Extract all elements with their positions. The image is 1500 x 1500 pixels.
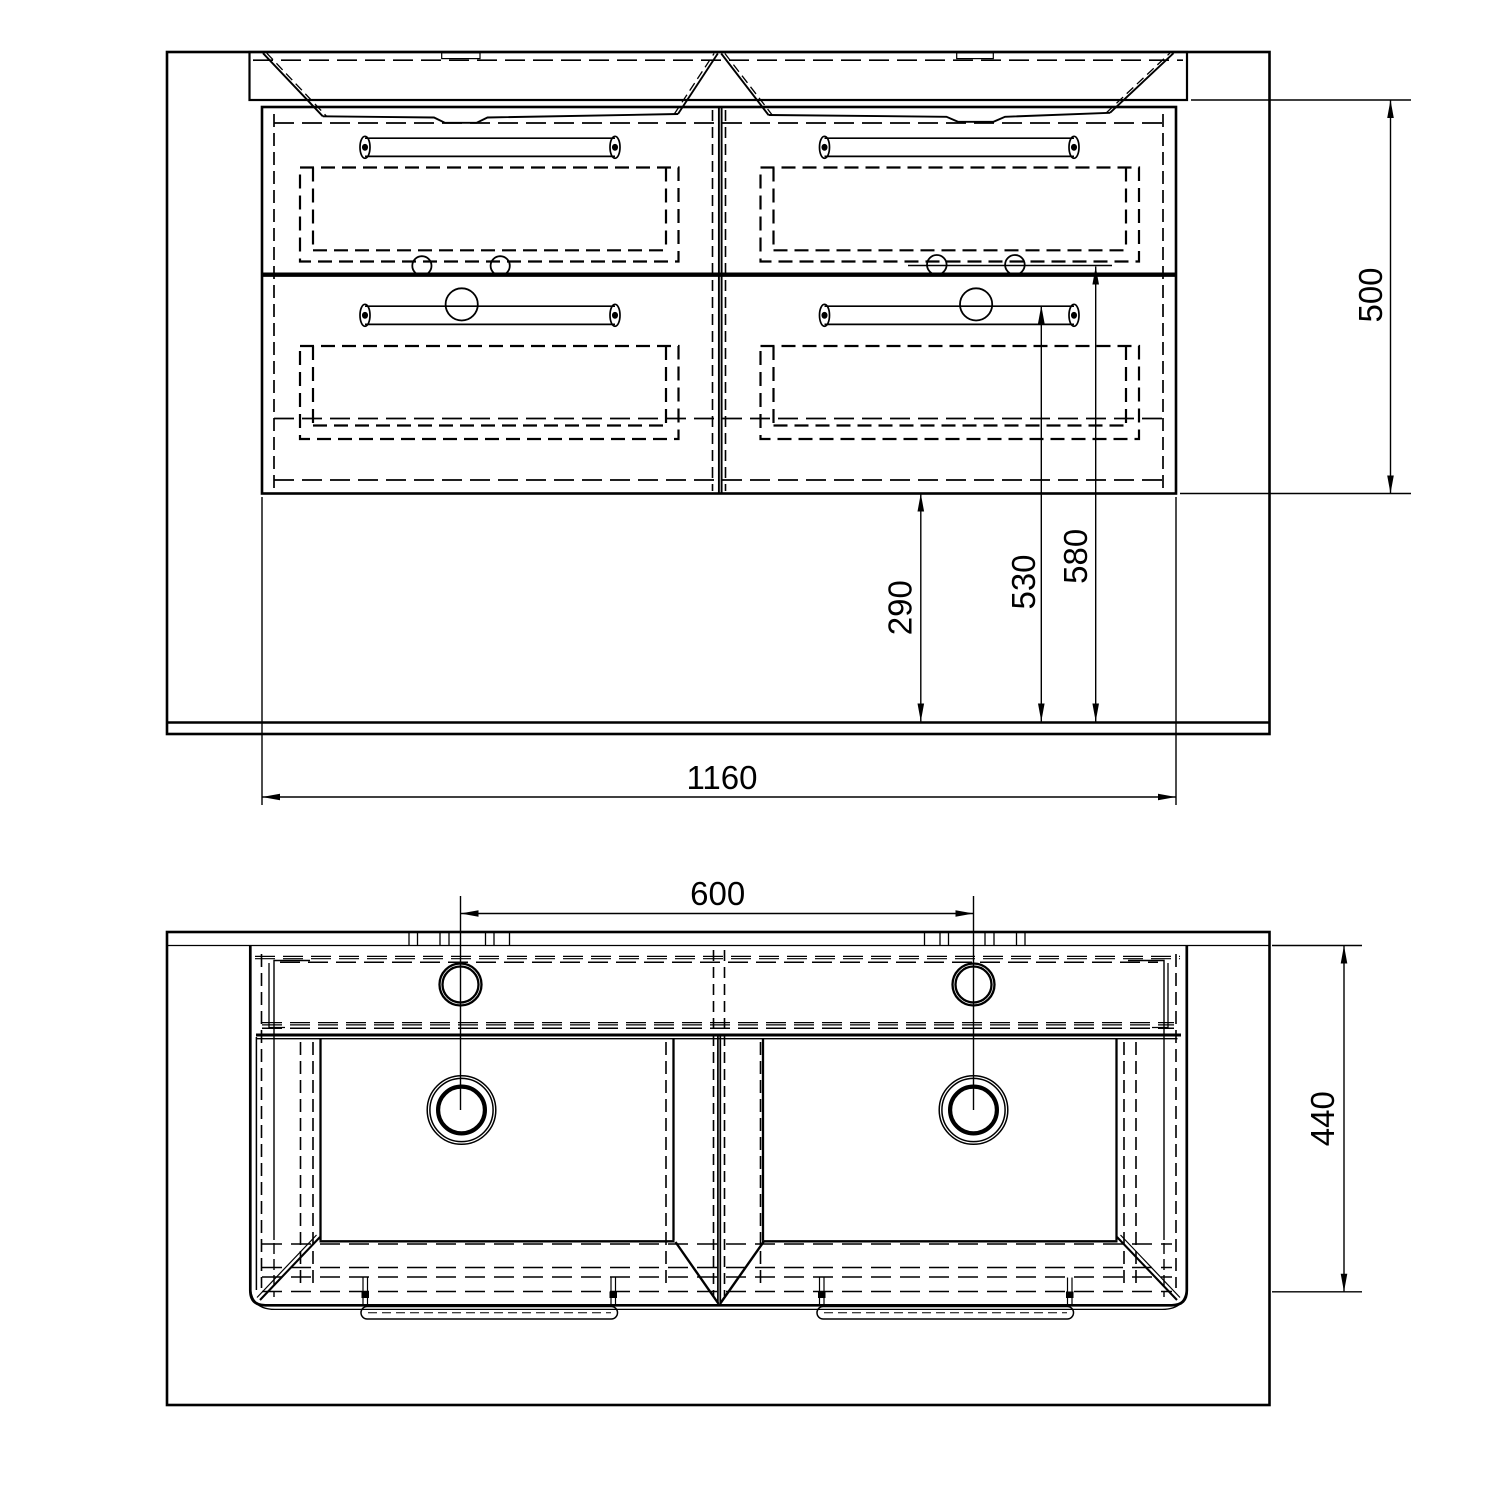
svg-text:290: 290 xyxy=(882,580,919,635)
svg-text:1160: 1160 xyxy=(687,759,758,796)
svg-text:530: 530 xyxy=(1005,554,1042,609)
svg-text:600: 600 xyxy=(690,875,745,912)
svg-text:440: 440 xyxy=(1304,1091,1341,1146)
svg-text:500: 500 xyxy=(1352,267,1389,322)
svg-text:580: 580 xyxy=(1057,529,1094,584)
